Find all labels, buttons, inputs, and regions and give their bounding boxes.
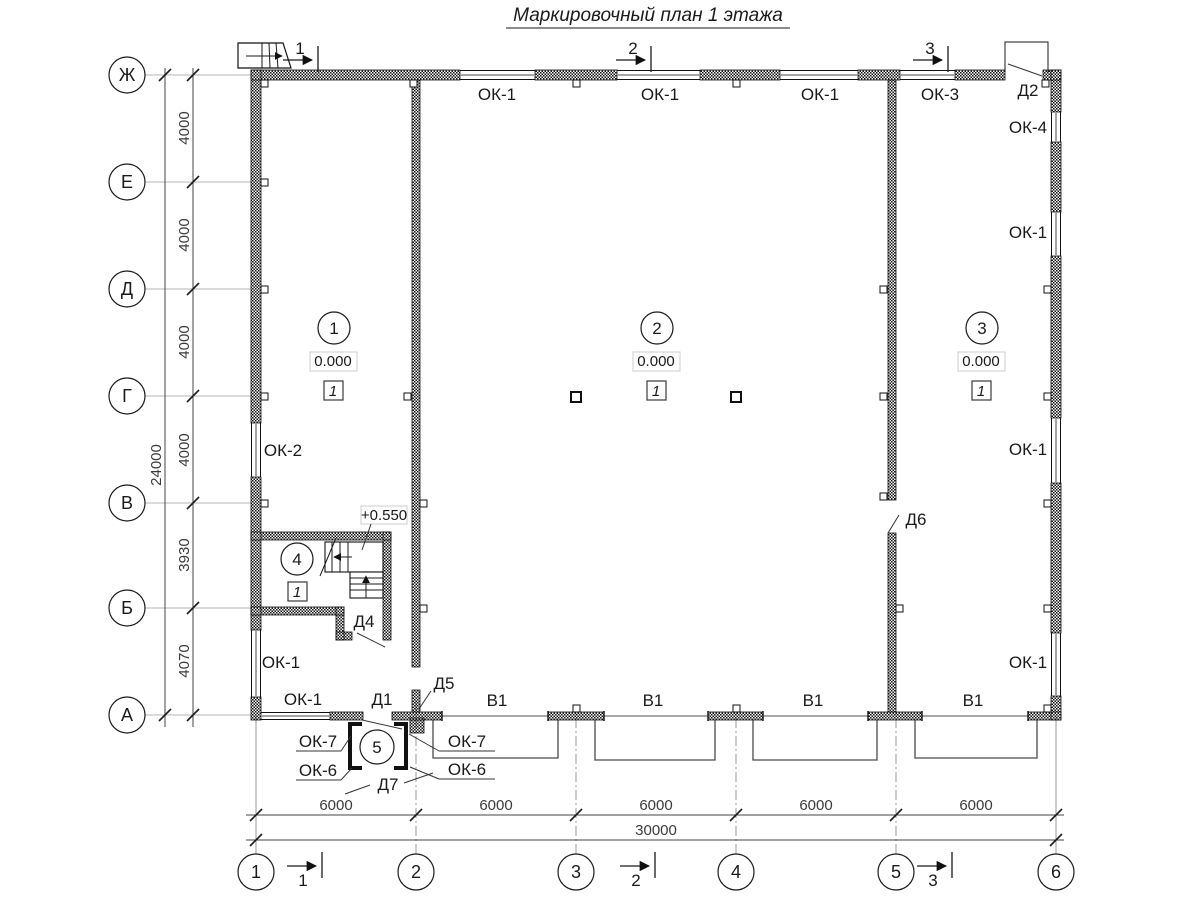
walls [251,70,1061,733]
row-bubble-e: Е [121,172,133,192]
dim-left-3: 4000 [176,325,193,358]
label-window-top-1: ОК-1 [478,85,516,104]
opening-labels: ОК-1 ОК-1 ОК-1 ОК-3 Д2 ОК-4 ОК-1 ОК-1 ОК… [262,81,1047,794]
window-top-ok1-c [780,71,858,80]
svg-text:3: 3 [977,319,986,338]
stair-landing-elevation: +0.550 [361,507,407,524]
label-window-left-1: ОК-2 [264,441,302,460]
label-door-d5: Д5 [434,674,455,693]
label-window-ok6-left: ОК-6 [299,761,337,780]
window-bottom-ok1 [261,713,330,720]
svg-text:2: 2 [652,319,661,338]
svg-text:1: 1 [329,319,338,338]
bottom-dimension-chain: 6000 6000 6000 6000 6000 30000 [246,797,1064,846]
room-4-floor-type: 1 [293,584,301,601]
dim-bottom-1: 6000 [319,797,352,814]
label-window-ok6-right: ОК-6 [448,760,486,779]
window-top-ok1-a [460,71,535,80]
window-left-ok1 [252,630,261,697]
dim-bottom-total: 30000 [635,822,677,839]
label-window-left-2: ОК-1 [262,653,300,672]
row-bubble-a: А [121,705,133,725]
room-2-mark: 2 0.000 1 [633,312,680,400]
room-1-mark: 1 0.000 1 [310,312,357,400]
svg-text:1: 1 [298,871,307,890]
svg-text:1: 1 [295,39,304,58]
window-top-ok1-b [617,71,700,80]
section-mark-2-bottom: 2 [620,852,655,890]
window-left-ok2 [252,423,261,477]
floor-plan-sheet: Маркировочный план 1 этажа [0,0,1200,900]
section-mark-3-top: 3 [913,39,948,72]
label-gate-v1-1: В1 [487,691,508,710]
label-window-top-4: ОК-3 [921,85,959,104]
label-door-d6: Д6 [906,510,927,529]
svg-text:3: 3 [928,871,937,890]
label-window-right-3: ОК-1 [1009,440,1047,459]
loading-platforms [433,720,1037,760]
free-column-axis3 [571,392,581,402]
col-bubble-6: 6 [1051,862,1061,882]
floor-plan-drawing: Маркировочный план 1 этажа [0,0,1200,900]
room-2-elevation: 0.000 [637,353,675,370]
door-d2-leaf [1008,64,1042,76]
svg-text:3: 3 [925,39,934,58]
label-window-ok7-right: ОК-7 [448,732,486,751]
dim-left-2: 4000 [176,218,193,251]
label-window-ok7-left: ОК-7 [299,732,337,751]
window-right-ok1-c [1052,633,1061,696]
dim-left-5: 3930 [176,538,193,571]
room-3-mark: 3 0.000 1 [958,312,1005,400]
room-3-elevation: 0.000 [962,353,1000,370]
svg-text:2: 2 [631,871,640,890]
row-bubble-b: Б [121,598,133,618]
label-door-d2: Д2 [1018,81,1039,100]
dim-bottom-3: 6000 [639,797,672,814]
section-mark-2-top: 2 [616,39,651,72]
svg-text:5: 5 [372,738,381,757]
dim-left-1: 4000 [176,111,193,144]
door-leaders [345,515,899,794]
door-d7-leader-left [345,785,370,794]
room-4-mark: 4 1 [281,543,313,601]
label-window-top-2: ОК-1 [641,85,679,104]
door-d4-leader [357,633,385,647]
section-mark-1-bottom: 1 [287,852,322,890]
row-axis-bubbles: Ж Е Д Г В Б А [109,57,145,733]
col-bubble-5: 5 [891,862,901,882]
exterior-stair-symbol [238,43,291,68]
svg-text:4: 4 [292,550,301,569]
svg-text:2: 2 [628,39,637,58]
label-gate-v1-3: В1 [803,691,824,710]
col-bubble-2: 2 [411,862,421,882]
col-bubble-1: 1 [251,862,261,882]
dim-bottom-4: 6000 [799,797,832,814]
sheet-title: Маркировочный план 1 этажа [506,5,790,28]
label-door-d4: Д4 [354,612,375,631]
page-title: Маркировочный план 1 этажа [513,5,783,26]
room-1-floor-type: 1 [329,383,337,400]
dim-bottom-2: 6000 [479,797,512,814]
column-axis-bubbles: 1 2 3 4 5 6 [238,854,1074,890]
dim-left-total: 24000 [148,444,165,486]
free-column-axis4 [731,392,741,402]
dim-left-4: 4000 [176,433,193,466]
room-3-floor-type: 1 [977,383,985,400]
window-right-ok4 [1052,112,1061,142]
porch-entry [1005,42,1048,76]
axis-extension-lines [145,75,1056,854]
label-door-d1: Д1 [372,690,393,709]
col-bubble-3: 3 [571,862,581,882]
row-bubble-g: Г [122,386,132,406]
window-right-ok1-a [1052,212,1061,256]
dim-left-6: 4070 [176,644,193,677]
label-window-right-2: ОК-1 [1009,223,1047,242]
room-1-elevation: 0.000 [314,353,352,370]
door-d5-leader [419,691,431,709]
window-top-ok3 [900,71,955,80]
label-window-top-3: ОК-1 [801,85,839,104]
label-gate-v1-4: В1 [963,691,984,710]
label-window-bottom-1: ОК-1 [284,690,322,709]
row-bubble-d: Д [121,279,133,299]
section-mark-3-bottom: 3 [917,852,952,890]
label-window-right-4: ОК-1 [1009,653,1047,672]
dim-bottom-5: 6000 [959,797,992,814]
window-right-ok1-b [1052,418,1061,483]
col-bubble-4: 4 [731,862,741,882]
label-gate-v1-2: В1 [643,691,664,710]
door-d6-leader [888,515,899,533]
interior-stair [320,538,383,598]
label-window-right-1: ОК-4 [1009,118,1047,137]
row-bubble-zh: Ж [119,65,136,85]
left-dimension-chain: 4000 4000 4000 4000 3930 4070 24000 [148,68,199,727]
room-5-mark: 5 [360,730,394,764]
row-bubble-v: В [121,493,133,513]
label-door-d7: Д7 [378,775,399,794]
room-2-floor-type: 1 [652,383,660,400]
